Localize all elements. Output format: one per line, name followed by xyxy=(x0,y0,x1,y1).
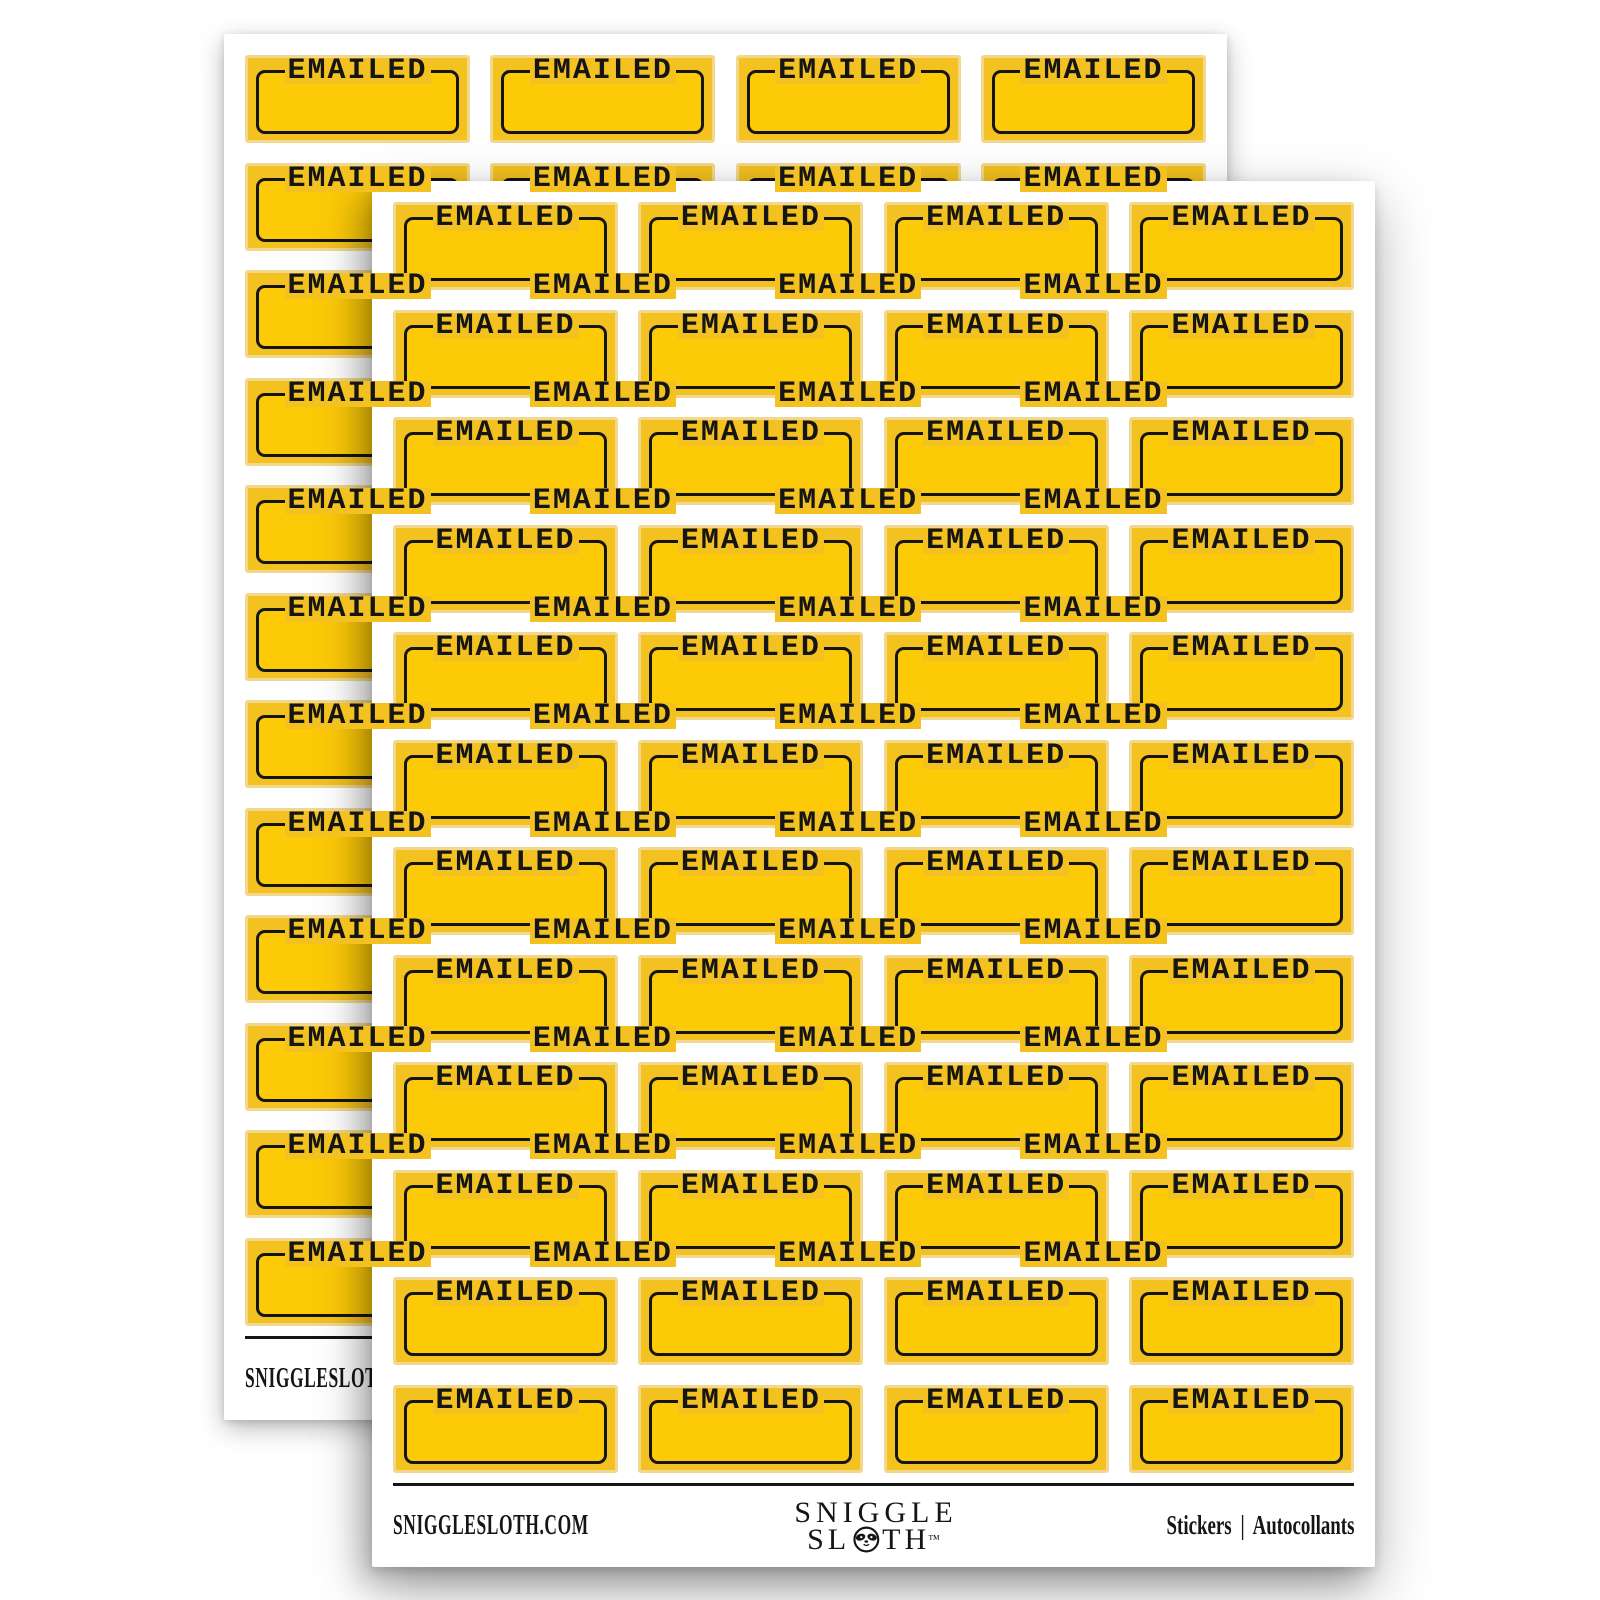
sticker-label: EMAILED xyxy=(1168,958,1314,984)
sticker-label: EMAILED xyxy=(1020,488,1166,514)
sticker-label: EMAILED xyxy=(775,918,921,944)
emailed-sticker: EMAILED xyxy=(393,1277,618,1365)
sticker-label: EMAILED xyxy=(678,313,824,339)
emailed-sticker: EMAILED xyxy=(981,55,1206,143)
logo-line2-right: TH xyxy=(882,1526,930,1553)
sticker-label: EMAILED xyxy=(1020,166,1166,192)
sticker-label: EMAILED xyxy=(1168,1280,1314,1306)
sticker-label: EMAILED xyxy=(284,488,430,514)
sticker-label: EMAILED xyxy=(1168,1388,1314,1414)
sticker-label: EMAILED xyxy=(530,703,676,729)
sticker-label: EMAILED xyxy=(775,58,921,84)
sticker-label: EMAILED xyxy=(678,1173,824,1199)
sticker-label: EMAILED xyxy=(775,596,921,622)
sticker-label: EMAILED xyxy=(284,811,430,837)
sticker-label: EMAILED xyxy=(775,703,921,729)
logo-line2: SL TH ™ xyxy=(789,1526,957,1553)
sticker-label: EMAILED xyxy=(432,1065,578,1091)
sticker-label: EMAILED xyxy=(775,166,921,192)
emailed-sticker: EMAILED xyxy=(884,1277,1109,1365)
sticker-label: EMAILED xyxy=(284,918,430,944)
sticker-label: EMAILED xyxy=(284,1133,430,1159)
sticker-label: EMAILED xyxy=(1168,205,1314,231)
sticker-label: EMAILED xyxy=(1168,528,1314,554)
sticker-label: EMAILED xyxy=(1168,313,1314,339)
sticker-label: EMAILED xyxy=(530,166,676,192)
sticker-label: EMAILED xyxy=(530,1241,676,1267)
sticker-label: EMAILED xyxy=(432,1173,578,1199)
website-url: SNIGGLESLOTH.COM xyxy=(393,1510,719,1542)
emailed-sticker: EMAILED xyxy=(884,1385,1109,1473)
category-text: Stickers | Autocollants xyxy=(1086,1511,1354,1541)
sticker-label: EMAILED xyxy=(530,596,676,622)
product-photo: EMAILEDEMAILEDEMAILEDEMAILEDEMAILEDEMAIL… xyxy=(0,0,1600,1600)
sticker-label: EMAILED xyxy=(923,1280,1069,1306)
trademark-symbol: ™ xyxy=(928,1526,940,1553)
sticker-label: EMAILED xyxy=(284,1026,430,1052)
sticker-label: EMAILED xyxy=(678,958,824,984)
sticker-label: EMAILED xyxy=(775,1133,921,1159)
sloth-face-icon xyxy=(853,1526,880,1553)
sticker-label: EMAILED xyxy=(530,58,676,84)
sticker-label: EMAILED xyxy=(530,1026,676,1052)
sticker-label: EMAILED xyxy=(432,205,578,231)
sticker-label: EMAILED xyxy=(284,166,430,192)
sticker-label: EMAILED xyxy=(678,1065,824,1091)
sticker-label: EMAILED xyxy=(432,850,578,876)
sticker-label: EMAILED xyxy=(1168,635,1314,661)
sticker-label: EMAILED xyxy=(775,811,921,837)
sticker-label: EMAILED xyxy=(432,1280,578,1306)
sticker-label: EMAILED xyxy=(1168,1065,1314,1091)
sticker-label: EMAILED xyxy=(923,743,1069,769)
emailed-sticker: EMAILED xyxy=(638,1385,863,1473)
sticker-label: EMAILED xyxy=(923,958,1069,984)
sticker-label: EMAILED xyxy=(775,273,921,299)
sticker-label: EMAILED xyxy=(530,273,676,299)
sticker-label: EMAILED xyxy=(1020,703,1166,729)
sticker-label: EMAILED xyxy=(775,488,921,514)
sticker-label: EMAILED xyxy=(1020,596,1166,622)
sticker-label: EMAILED xyxy=(1020,1026,1166,1052)
sticker-label: EMAILED xyxy=(432,313,578,339)
sticker-label: EMAILED xyxy=(1020,811,1166,837)
sticker-label: EMAILED xyxy=(923,313,1069,339)
sticker-label: EMAILED xyxy=(284,596,430,622)
sticker-label: EMAILED xyxy=(775,381,921,407)
sticker-label: EMAILED xyxy=(678,1388,824,1414)
sticker-label: EMAILED xyxy=(923,420,1069,446)
sticker-label: EMAILED xyxy=(1020,1241,1166,1267)
emailed-sticker: EMAILED xyxy=(490,55,715,143)
sticker-label: EMAILED xyxy=(284,703,430,729)
sticker-label: EMAILED xyxy=(923,635,1069,661)
sticker-label: EMAILED xyxy=(432,958,578,984)
sticker-label: EMAILED xyxy=(678,743,824,769)
sticker-label: EMAILED xyxy=(530,918,676,944)
sticker-label: EMAILED xyxy=(923,1388,1069,1414)
emailed-sticker: EMAILED xyxy=(1129,1385,1354,1473)
sticker-label: EMAILED xyxy=(678,420,824,446)
sticker-label: EMAILED xyxy=(923,1065,1069,1091)
emailed-sticker: EMAILED xyxy=(393,1385,618,1473)
sticker-label: EMAILED xyxy=(1020,1133,1166,1159)
sticker-label: EMAILED xyxy=(1020,273,1166,299)
sticker-label: EMAILED xyxy=(678,1280,824,1306)
logo-line2-left: SL xyxy=(807,1526,850,1553)
sticker-label: EMAILED xyxy=(432,743,578,769)
brand-logo: SNIGGLE SL TH ™ xyxy=(789,1499,957,1553)
sticker-label: EMAILED xyxy=(432,1388,578,1414)
category-text-label: Stickers | Autocollants xyxy=(1166,1511,1354,1541)
sticker-label: EMAILED xyxy=(432,420,578,446)
sticker-label: EMAILED xyxy=(530,1133,676,1159)
emailed-sticker: EMAILED xyxy=(638,1277,863,1365)
sticker-label: EMAILED xyxy=(284,273,430,299)
sticker-label: EMAILED xyxy=(923,528,1069,554)
sticker-label: EMAILED xyxy=(1020,58,1166,84)
sticker-label: EMAILED xyxy=(775,1026,921,1052)
logo-line1: SNIGGLE xyxy=(794,1499,957,1526)
sticker-label: EMAILED xyxy=(678,635,824,661)
sticker-label: EMAILED xyxy=(1020,918,1166,944)
sticker-label: EMAILED xyxy=(1168,743,1314,769)
sticker-label: EMAILED xyxy=(678,850,824,876)
sticker-label: EMAILED xyxy=(432,635,578,661)
sticker-label: EMAILED xyxy=(1020,381,1166,407)
emailed-sticker: EMAILED xyxy=(736,55,961,143)
sticker-label: EMAILED xyxy=(678,205,824,231)
sticker-label: EMAILED xyxy=(775,1241,921,1267)
sticker-label: EMAILED xyxy=(923,205,1069,231)
sticker-label: EMAILED xyxy=(678,528,824,554)
sticker-label: EMAILED xyxy=(530,381,676,407)
sticker-label: EMAILED xyxy=(923,1173,1069,1199)
sticker-label: EMAILED xyxy=(1168,1173,1314,1199)
sticker-label: EMAILED xyxy=(923,850,1069,876)
sticker-label: EMAILED xyxy=(1168,850,1314,876)
emailed-sticker: EMAILED xyxy=(1129,1277,1354,1365)
sticker-label: EMAILED xyxy=(432,528,578,554)
sticker-label: EMAILED xyxy=(284,1241,430,1267)
sheet-footer: SNIGGLESLOTH.COM SNIGGLE SL TH ™ Sticker… xyxy=(393,1486,1354,1566)
emailed-sticker: EMAILED xyxy=(245,55,470,143)
sticker-label: EMAILED xyxy=(530,488,676,514)
sticker-label: EMAILED xyxy=(284,381,430,407)
sticker-label: EMAILED xyxy=(530,811,676,837)
website-url-text: SNIGGLESLOTH.COM xyxy=(393,1510,589,1542)
sticker-label: EMAILED xyxy=(284,58,430,84)
sticker-label: EMAILED xyxy=(1168,420,1314,446)
